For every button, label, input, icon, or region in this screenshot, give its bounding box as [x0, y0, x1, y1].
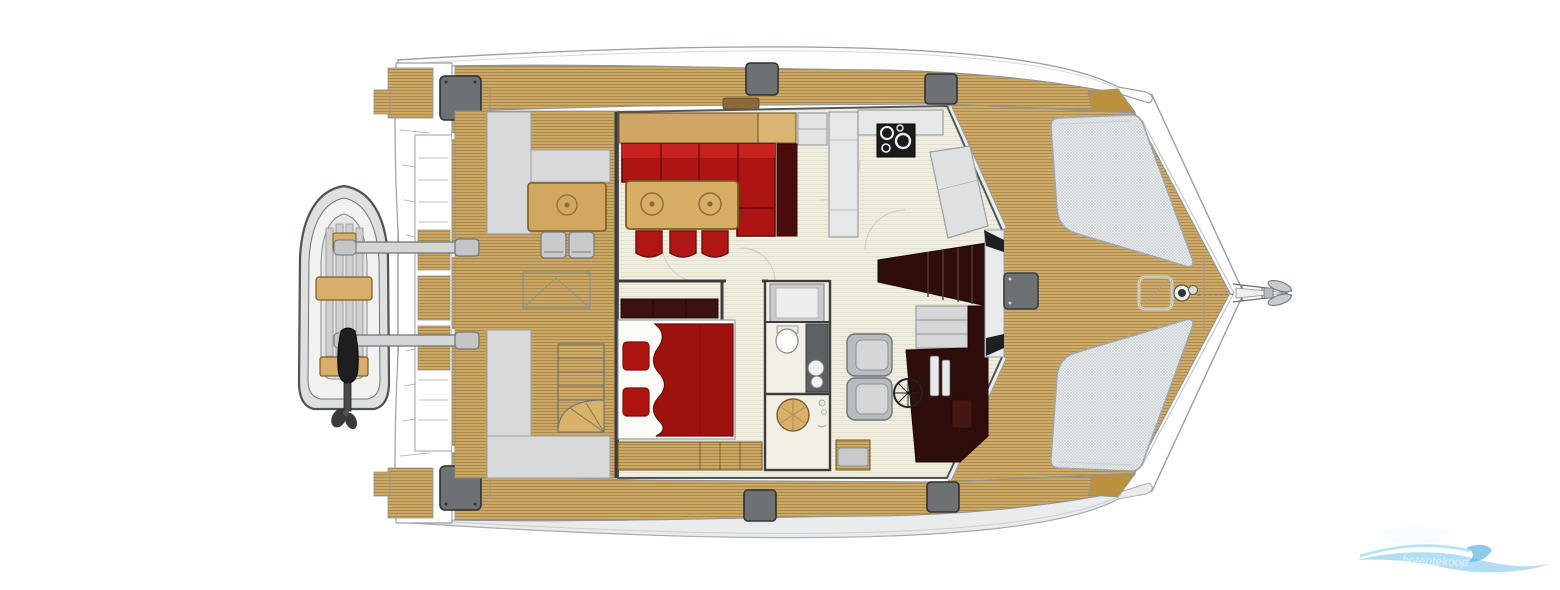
svg-text:botentekoop: botentekoop — [1402, 553, 1469, 569]
